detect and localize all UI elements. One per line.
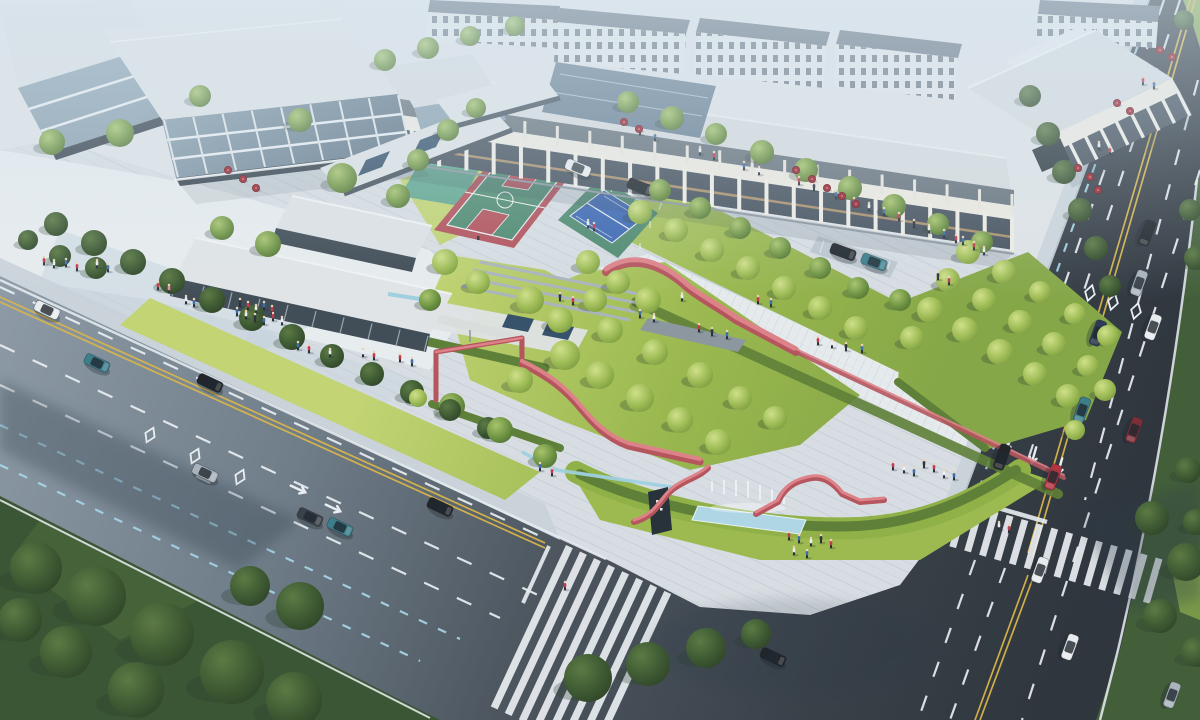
aerial-render bbox=[0, 0, 1200, 720]
haze-overlay bbox=[0, 0, 1200, 300]
tree bbox=[0, 598, 42, 642]
aerial-render-stage bbox=[0, 0, 1200, 720]
